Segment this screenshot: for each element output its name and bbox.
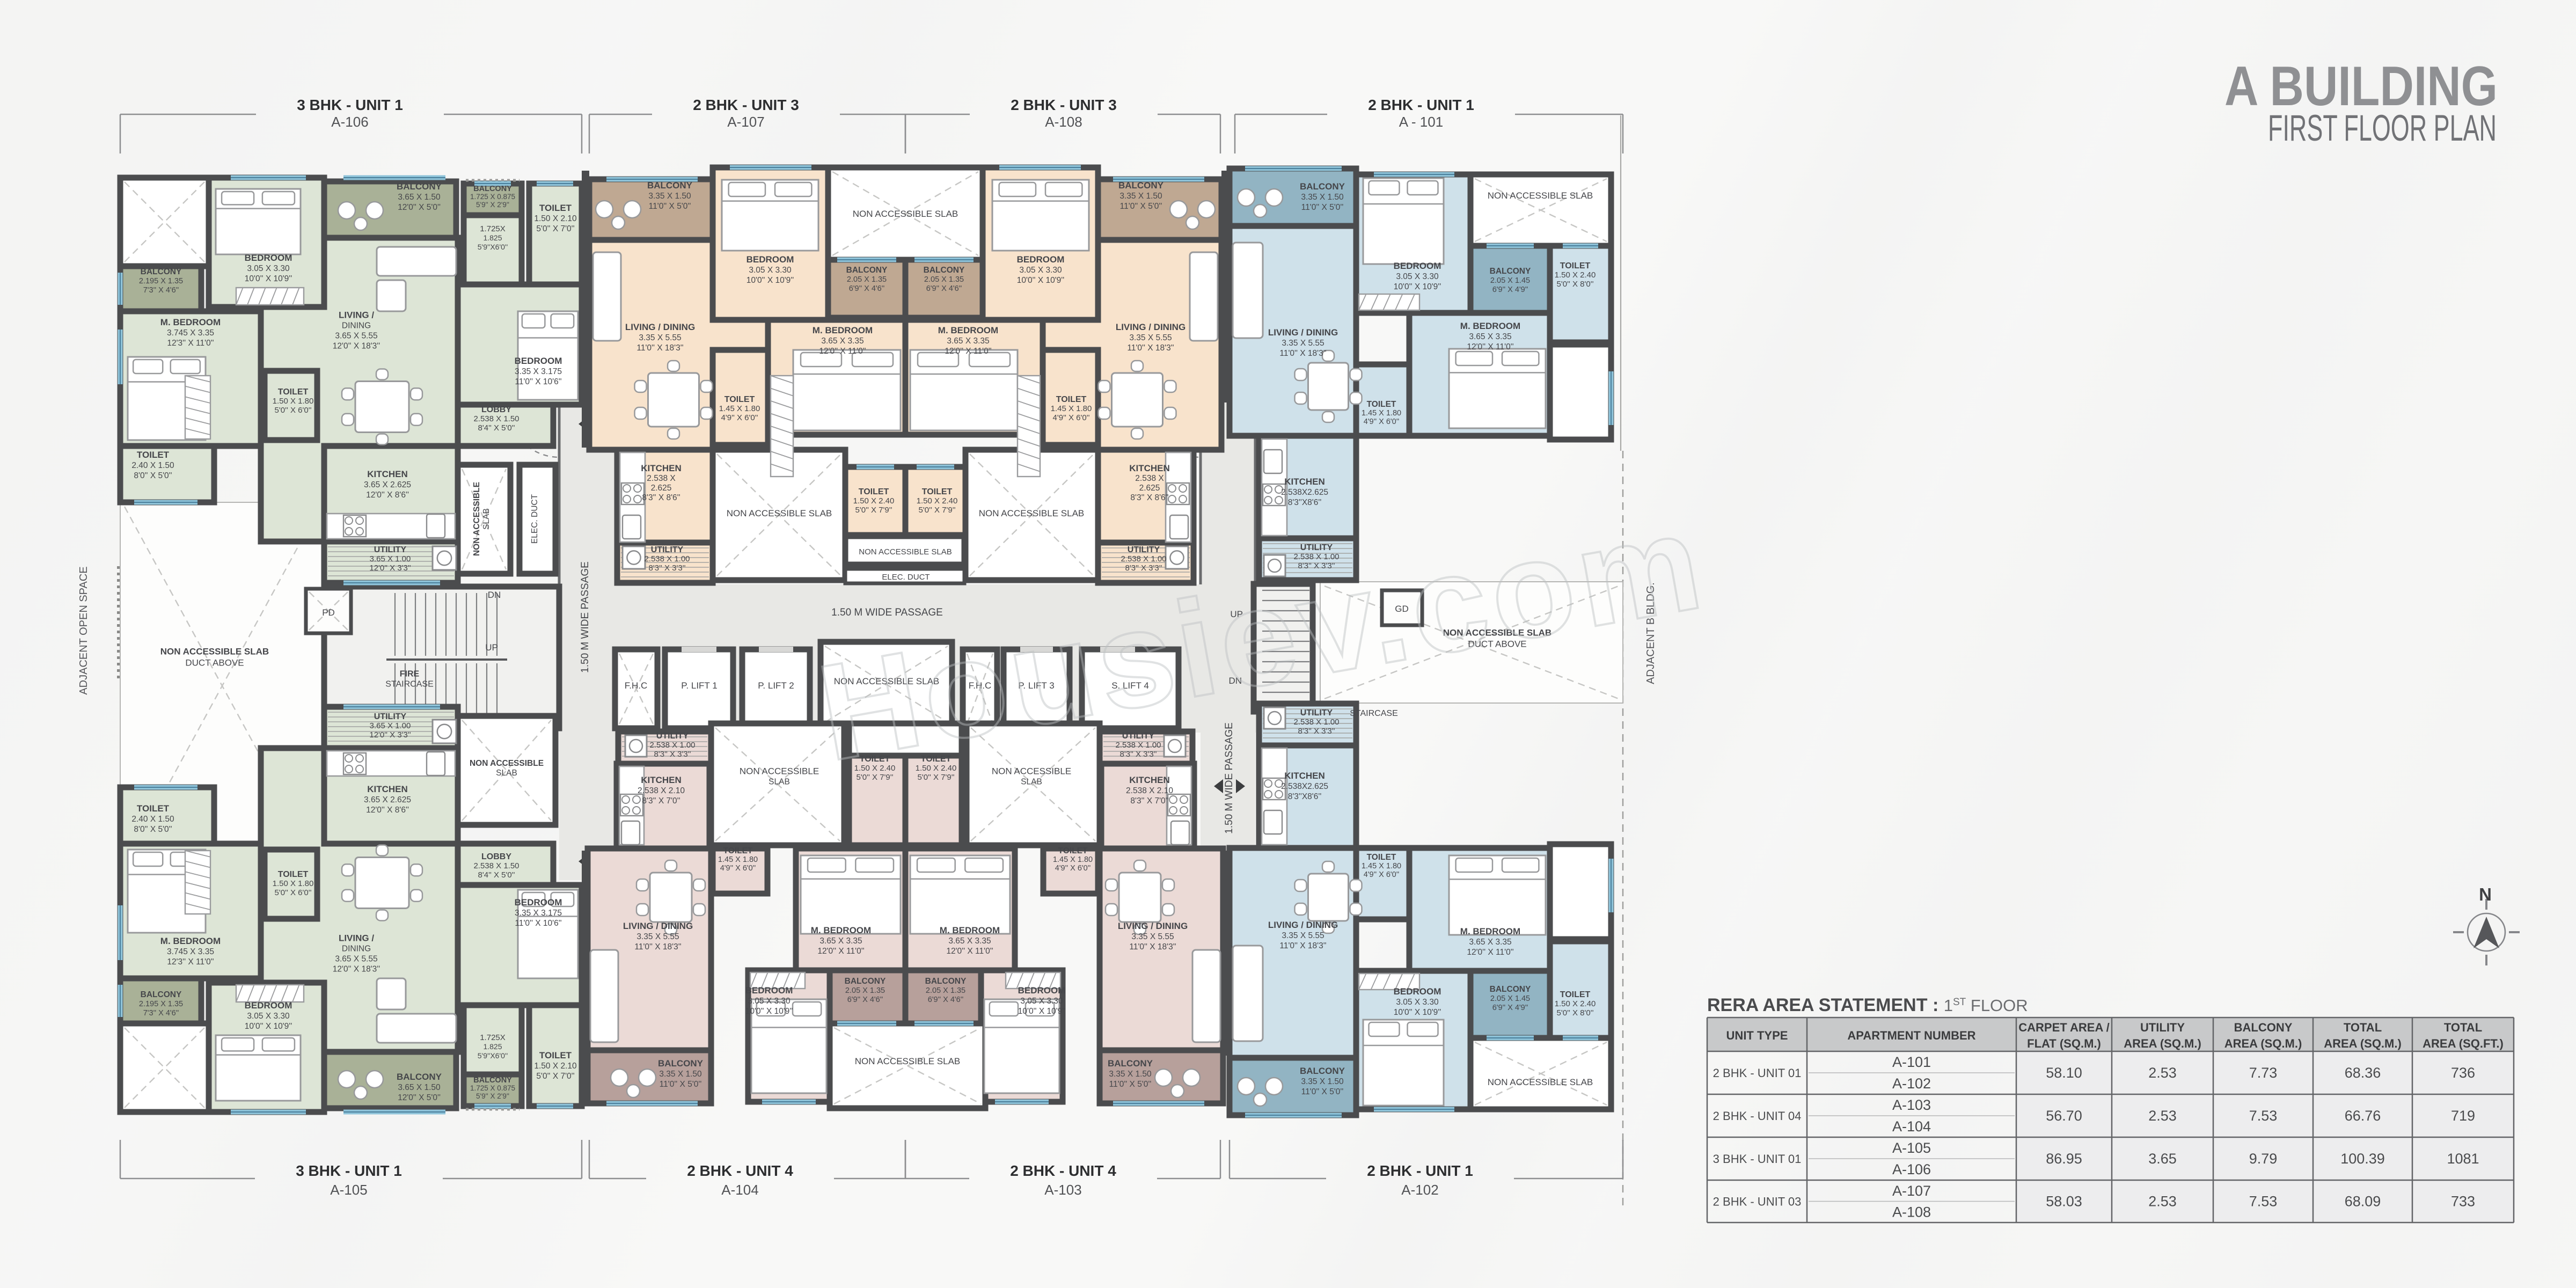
svg-text:3 BHK - UNIT 1: 3 BHK - UNIT 1 <box>297 97 403 113</box>
svg-text:NON ACCESSIBLE SLAB: NON ACCESSIBLE SLAB <box>1488 191 1593 201</box>
svg-text:TOILET1.45 X 1.804'9'' X 6'0'': TOILET1.45 X 1.804'9'' X 6'0'' <box>1362 400 1401 426</box>
svg-text:BEDROOM3.05 X 3.3010'0'' X 10': BEDROOM3.05 X 3.3010'0'' X 10'9'' <box>1018 985 1066 1016</box>
svg-text:BALCONY2.195 X 1.357'3'' X 4'6: BALCONY2.195 X 1.357'3'' X 4'6'' <box>139 267 183 295</box>
svg-text:M. BEDROOM3.745 X 3.3512'3'' X: M. BEDROOM3.745 X 3.3512'3'' X 11'0'' <box>160 317 221 348</box>
svg-text:BEDROOM3.05 X 3.3010'0'' X 10': BEDROOM3.05 X 3.3010'0'' X 10'9'' <box>1394 261 1441 291</box>
svg-text:TOILET1.50 X 2.105'0'' X 7'0'': TOILET1.50 X 2.105'0'' X 7'0'' <box>534 203 577 233</box>
svg-text:2.53: 2.53 <box>2148 1108 2177 1124</box>
svg-text:KITCHEN2.538 X 2.108'3'' X 7'0: KITCHEN2.538 X 2.108'3'' X 7'0'' <box>1126 775 1173 806</box>
svg-text:RERA AREA STATEMENT : 1ST FLOO: RERA AREA STATEMENT : 1ST FLOOR <box>1707 995 2028 1015</box>
svg-text:A-102: A-102 <box>1892 1075 1931 1092</box>
svg-text:TOTAL: TOTAL <box>2344 1021 2382 1034</box>
svg-text:1.50 M WIDE PASSAGE: 1.50 M WIDE PASSAGE <box>831 607 943 618</box>
svg-text:7.53: 7.53 <box>2249 1194 2278 1210</box>
svg-text:BALCONY: BALCONY <box>2234 1021 2293 1034</box>
svg-text:68.36: 68.36 <box>2345 1065 2381 1081</box>
svg-text:UNIT TYPE: UNIT TYPE <box>1726 1029 1788 1042</box>
svg-text:P. LIFT 1: P. LIFT 1 <box>681 680 717 691</box>
svg-text:A-102: A-102 <box>1401 1182 1438 1198</box>
svg-text:M. BEDROOM3.65 X 3.3512'0'' X: M. BEDROOM3.65 X 3.3512'0'' X 11'0'' <box>940 925 1000 956</box>
svg-text:UTILITY3.65 X 1.0012'0'' X 3'3: UTILITY3.65 X 1.0012'0'' X 3'3'' <box>369 712 411 740</box>
svg-text:TOILET1.50 X 2.405'0'' X 7'9'': TOILET1.50 X 2.405'0'' X 7'9'' <box>917 487 958 515</box>
svg-text:BALCONY2.05 X 1.456'9'' X 4'9': BALCONY2.05 X 1.456'9'' X 4'9'' <box>1490 985 1531 1012</box>
svg-text:2 BHK - UNIT 01: 2 BHK - UNIT 01 <box>1713 1066 1802 1080</box>
svg-text:ADJACENT OPEN SPACE: ADJACENT OPEN SPACE <box>78 566 90 694</box>
svg-text:BALCONY3.65 X 1.5012'0'' X 5'0: BALCONY3.65 X 1.5012'0'' X 5'0'' <box>397 1072 442 1102</box>
svg-text:NON ACCESSIBLE SLAB: NON ACCESSIBLE SLAB <box>859 547 952 557</box>
svg-text:9.79: 9.79 <box>2249 1151 2278 1167</box>
svg-text:100.39: 100.39 <box>2340 1151 2385 1167</box>
svg-text:UTILITY3.65 X 1.0012'0'' X 3'3: UTILITY3.65 X 1.0012'0'' X 3'3'' <box>369 545 411 573</box>
svg-text:BALCONY3.65 X 1.5012'0'' X 5'0: BALCONY3.65 X 1.5012'0'' X 5'0'' <box>397 181 442 212</box>
svg-text:2 BHK - UNIT 03: 2 BHK - UNIT 03 <box>1713 1195 1802 1209</box>
svg-text:KITCHEN2.538X2.6258'3''X8'6'': KITCHEN2.538X2.6258'3''X8'6'' <box>1281 477 1328 507</box>
svg-text:1.50 M WIDE PASSAGE: 1.50 M WIDE PASSAGE <box>580 561 591 673</box>
svg-text:733: 733 <box>2451 1194 2475 1210</box>
svg-text:A-106: A-106 <box>331 114 368 130</box>
svg-text:TOILET1.45 X 1.804'9'' X 6'0'': TOILET1.45 X 1.804'9'' X 6'0'' <box>1053 846 1093 873</box>
svg-text:2 BHK - UNIT 3: 2 BHK - UNIT 3 <box>1011 97 1117 113</box>
svg-text:NON ACCESSIBLE SLAB: NON ACCESSIBLE SLAB <box>855 1056 961 1066</box>
svg-text:M. BEDROOM3.65 X 3.3512'0'' X: M. BEDROOM3.65 X 3.3512'0'' X 11'0'' <box>811 925 871 956</box>
svg-text:STAIRCASE: STAIRCASE <box>1350 709 1398 718</box>
svg-text:719: 719 <box>2451 1108 2475 1124</box>
svg-text:NON ACCESSIBLE SLAB: NON ACCESSIBLE SLAB <box>979 508 1085 518</box>
svg-text:UTILITY: UTILITY <box>2140 1021 2185 1034</box>
svg-text:TOILET1.45 X 1.804'9'' X 6'0'': TOILET1.45 X 1.804'9'' X 6'0'' <box>719 395 760 422</box>
svg-text:ELEC. DUCT: ELEC. DUCT <box>530 494 539 544</box>
svg-text:CARPET AREA /: CARPET AREA / <box>2018 1021 2110 1034</box>
svg-text:TOILET1.50 X 1.805'0'' X 6'0'': TOILET1.50 X 1.805'0'' X 6'0'' <box>273 387 314 415</box>
svg-text:2 BHK - UNIT 1: 2 BHK - UNIT 1 <box>1367 1162 1473 1179</box>
svg-text:M. BEDROOM3.745 X 3.3512'3'' X: M. BEDROOM3.745 X 3.3512'3'' X 11'0'' <box>160 936 221 967</box>
svg-text:A-105: A-105 <box>1892 1140 1931 1156</box>
svg-text:TOILET1.45 X 1.804'9'' X 6'0'': TOILET1.45 X 1.804'9'' X 6'0'' <box>1051 395 1092 422</box>
svg-text:N: N <box>2479 884 2492 904</box>
svg-text:A-107: A-107 <box>1892 1183 1931 1199</box>
svg-text:58.10: 58.10 <box>2046 1065 2082 1081</box>
svg-text:A-103: A-103 <box>1044 1182 1081 1198</box>
svg-text:TOILET1.50 X 1.805'0'' X 6'0'': TOILET1.50 X 1.805'0'' X 6'0'' <box>273 870 314 897</box>
svg-text:A-101: A-101 <box>1892 1054 1931 1070</box>
svg-text:UTILITY2.538 X 1.008'3'' X 3'3: UTILITY2.538 X 1.008'3'' X 3'3'' <box>1121 545 1166 573</box>
svg-text:TOILET1.45 X 1.804'9'' X 6'0'': TOILET1.45 X 1.804'9'' X 6'0'' <box>718 846 758 873</box>
svg-text:KITCHEN2.538 X2.6258'3'' X 8'6: KITCHEN2.538 X2.6258'3'' X 8'6'' <box>1129 463 1170 502</box>
svg-text:2 BHK - UNIT 04: 2 BHK - UNIT 04 <box>1713 1109 1802 1123</box>
svg-text:BEDROOM3.05 X 3.3010'0'' X 10': BEDROOM3.05 X 3.3010'0'' X 10'9'' <box>747 254 794 285</box>
svg-text:AREA (SQ.M.): AREA (SQ.M.) <box>2324 1037 2402 1050</box>
svg-text:BALCONY3.35 X 1.5011'0'' X 5'0: BALCONY3.35 X 1.5011'0'' X 5'0'' <box>1108 1058 1153 1089</box>
svg-text:M. BEDROOM3.65 X 3.3512'0'' X: M. BEDROOM3.65 X 3.3512'0'' X 11'0'' <box>813 325 873 356</box>
svg-text:TOILET2.40 X 1.508'0'' X 5'0'': TOILET2.40 X 1.508'0'' X 5'0'' <box>131 803 174 834</box>
svg-text:UTILITY2.538 X 1.008'3'' X 3'3: UTILITY2.538 X 1.008'3'' X 3'3'' <box>649 731 695 759</box>
svg-text:KITCHEN2.538 X 2.108'3'' X 7'0: KITCHEN2.538 X 2.108'3'' X 7'0'' <box>638 775 685 806</box>
svg-text:A-108: A-108 <box>1892 1204 1931 1220</box>
svg-text:BALCONY3.35 X 1.5011'0'' X 5'0: BALCONY3.35 X 1.5011'0'' X 5'0'' <box>647 180 693 211</box>
svg-text:BALCONY3.35 X 1.5011'0'' X 5'0: BALCONY3.35 X 1.5011'0'' X 5'0'' <box>1300 1066 1345 1096</box>
svg-text:68.09: 68.09 <box>2345 1194 2381 1210</box>
svg-text:DN: DN <box>488 590 501 600</box>
svg-text:A-108: A-108 <box>1045 114 1082 130</box>
svg-text:66.76: 66.76 <box>2345 1108 2381 1124</box>
svg-text:736: 736 <box>2451 1065 2475 1081</box>
svg-text:BALCONY2.05 X 1.356'9'' X 4'6': BALCONY2.05 X 1.356'9'' X 4'6'' <box>924 266 965 293</box>
svg-text:2 BHK - UNIT 4: 2 BHK - UNIT 4 <box>687 1162 793 1179</box>
svg-text:AREA (SQ.M.): AREA (SQ.M.) <box>2224 1037 2302 1050</box>
svg-text:PD: PD <box>322 608 335 618</box>
svg-text:A-106: A-106 <box>1892 1161 1931 1177</box>
svg-text:BEDROOM3.05 X 3.3010'0'' X 10': BEDROOM3.05 X 3.3010'0'' X 10'9'' <box>245 1000 292 1031</box>
svg-text:M. BEDROOM3.65 X 3.3512'0'' X: M. BEDROOM3.65 X 3.3512'0'' X 11'0'' <box>1460 321 1520 352</box>
svg-text:A-104: A-104 <box>721 1182 758 1198</box>
svg-text:BALCONY1.725 X 0.8755'9'' X 2': BALCONY1.725 X 0.8755'9'' X 2'9'' <box>470 185 515 209</box>
svg-text:NON ACCESSIBLE SLAB: NON ACCESSIBLE SLAB <box>853 209 958 219</box>
svg-text:BALCONY2.05 X 1.456'9'' X 4'9': BALCONY2.05 X 1.456'9'' X 4'9'' <box>1490 267 1531 294</box>
svg-text:2 BHK - UNIT 3: 2 BHK - UNIT 3 <box>693 97 799 113</box>
svg-text:BEDROOM3.05 X 3.3010'0'' X 10': BEDROOM3.05 X 3.3010'0'' X 10'9'' <box>1017 254 1065 285</box>
svg-text:M. BEDROOM3.65 X 3.3512'0'' X: M. BEDROOM3.65 X 3.3512'0'' X 11'0'' <box>938 325 998 356</box>
svg-text:BALCONY2.05 X 1.356'9'' X 4'6': BALCONY2.05 X 1.356'9'' X 4'6'' <box>845 977 886 1004</box>
svg-text:FIRST FLOOR PLAN: FIRST FLOOR PLAN <box>2268 107 2497 149</box>
svg-text:58.03: 58.03 <box>2046 1194 2082 1210</box>
svg-text:A-103: A-103 <box>1892 1097 1931 1113</box>
svg-text:A-104: A-104 <box>1892 1118 1931 1135</box>
svg-text:3 BHK - UNIT 1: 3 BHK - UNIT 1 <box>296 1162 402 1179</box>
svg-text:BEDROOM3.05 X 3.3010'0'' X 10': BEDROOM3.05 X 3.3010'0'' X 10'9'' <box>1394 986 1441 1017</box>
svg-text:KITCHEN2.538X2.6258'3''X8'6'': KITCHEN2.538X2.6258'3''X8'6'' <box>1281 771 1328 801</box>
svg-text:2 BHK - UNIT 1: 2 BHK - UNIT 1 <box>1368 97 1474 113</box>
svg-text:M. BEDROOM3.65 X 3.3512'0'' X: M. BEDROOM3.65 X 3.3512'0'' X 11'0'' <box>1460 926 1520 957</box>
svg-text:P. LIFT 2: P. LIFT 2 <box>758 680 794 691</box>
svg-text:3.65: 3.65 <box>2148 1151 2177 1167</box>
svg-text:A - 101: A - 101 <box>1399 114 1443 130</box>
svg-text:KITCHEN3.65 X 2.62512'0'' X 8': KITCHEN3.65 X 2.62512'0'' X 8'6'' <box>364 784 411 815</box>
svg-text:FLAT (SQ.M.): FLAT (SQ.M.) <box>2027 1037 2101 1050</box>
svg-text:86.95: 86.95 <box>2046 1151 2082 1167</box>
svg-text:TOILET1.45 X 1.804'9'' X 6'0'': TOILET1.45 X 1.804'9'' X 6'0'' <box>1362 853 1401 879</box>
svg-text:KITCHEN2.538 X2.6258'3'' X 8'6: KITCHEN2.538 X2.6258'3'' X 8'6'' <box>641 463 682 502</box>
svg-text:BALCONY2.195 X 1.357'3'' X 4'6: BALCONY2.195 X 1.357'3'' X 4'6'' <box>139 990 183 1018</box>
svg-text:7.73: 7.73 <box>2249 1065 2278 1081</box>
svg-text:2.53: 2.53 <box>2148 1065 2177 1081</box>
svg-text:BALCONY3.35 X 1.5011'0'' X 5'0: BALCONY3.35 X 1.5011'0'' X 5'0'' <box>658 1058 704 1089</box>
svg-text:BEDROOM3.05 X 3.3010'0'' X 10': BEDROOM3.05 X 3.3010'0'' X 10'9'' <box>245 253 292 283</box>
svg-text:KITCHEN3.65 X 2.62512'0'' X 8': KITCHEN3.65 X 2.62512'0'' X 8'6'' <box>364 469 411 500</box>
svg-text:ELEC. DUCT: ELEC. DUCT <box>882 573 930 582</box>
svg-text:UP: UP <box>485 642 498 653</box>
svg-text:UTILITY2.538 X 1.008'3'' X 3'3: UTILITY2.538 X 1.008'3'' X 3'3'' <box>644 545 690 573</box>
svg-text:UTILITY2.538 X 1.008'3'' X 3'3: UTILITY2.538 X 1.008'3'' X 3'3'' <box>1293 708 1339 736</box>
svg-text:BEDROOM3.35 X 3.17511'0'' X 10: BEDROOM3.35 X 3.17511'0'' X 10'6'' <box>515 356 562 386</box>
svg-text:TOILET1.50 X 2.405'0'' X 7'9'': TOILET1.50 X 2.405'0'' X 7'9'' <box>853 487 895 515</box>
svg-text:1081: 1081 <box>2447 1151 2479 1167</box>
svg-text:3 BHK - UNIT 01: 3 BHK - UNIT 01 <box>1713 1152 1802 1166</box>
svg-text:BALCONY3.35 X 1.5011'0'' X 5'0: BALCONY3.35 X 1.5011'0'' X 5'0'' <box>1118 180 1164 211</box>
svg-text:TOILET1.50 X 2.105'0'' X 7'0'': TOILET1.50 X 2.105'0'' X 7'0'' <box>534 1050 577 1081</box>
svg-text:NON ACCESSIBLE SLAB: NON ACCESSIBLE SLAB <box>1488 1077 1593 1087</box>
svg-text:AREA (SQ.M.): AREA (SQ.M.) <box>2124 1037 2201 1050</box>
svg-text:APARTMENT NUMBER: APARTMENT NUMBER <box>1847 1029 1975 1042</box>
svg-text:AREA (SQ.FT.): AREA (SQ.FT.) <box>2423 1037 2504 1050</box>
svg-text:NON ACCESSIBLE SLAB: NON ACCESSIBLE SLAB <box>727 508 832 518</box>
svg-text:2 BHK - UNIT 4: 2 BHK - UNIT 4 <box>1010 1162 1116 1179</box>
svg-text:BALCONY3.35 X 1.5011'0'' X 5'0: BALCONY3.35 X 1.5011'0'' X 5'0'' <box>1300 181 1345 212</box>
svg-text:TOILET1.50 X 2.405'0'' X 8'0'': TOILET1.50 X 2.405'0'' X 8'0'' <box>1555 261 1596 289</box>
svg-text:BALCONY2.05 X 1.356'9'' X 4'6': BALCONY2.05 X 1.356'9'' X 4'6'' <box>925 977 967 1004</box>
svg-text:BEDROOM3.05 X 3.3010'0'' X 10': BEDROOM3.05 X 3.3010'0'' X 10'9'' <box>745 985 793 1016</box>
svg-text:7.53: 7.53 <box>2249 1108 2278 1124</box>
svg-text:TOTAL: TOTAL <box>2444 1021 2482 1034</box>
svg-text:TOILET1.50 X 2.405'0'' X 8'0'': TOILET1.50 X 2.405'0'' X 8'0'' <box>1555 990 1596 1018</box>
svg-text:TOILET2.40 X 1.508'0'' X 5'0'': TOILET2.40 X 1.508'0'' X 5'0'' <box>131 450 174 480</box>
svg-text:BALCONY2.05 X 1.356'9'' X 4'6': BALCONY2.05 X 1.356'9'' X 4'6'' <box>846 266 888 293</box>
svg-text:BEDROOM3.35 X 3.17511'0'' X 10: BEDROOM3.35 X 3.17511'0'' X 10'6'' <box>515 897 562 928</box>
svg-text:56.70: 56.70 <box>2046 1108 2082 1124</box>
svg-text:A-107: A-107 <box>727 114 764 130</box>
svg-text:BALCONY1.725 X 0.8755'9'' X 2': BALCONY1.725 X 0.8755'9'' X 2'9'' <box>470 1076 515 1100</box>
svg-text:F.H.C: F.H.C <box>625 680 648 691</box>
svg-text:A-105: A-105 <box>330 1182 367 1198</box>
svg-text:2.53: 2.53 <box>2148 1194 2177 1210</box>
svg-text:1.50 M WIDE PASSAGE: 1.50 M WIDE PASSAGE <box>1224 722 1235 834</box>
